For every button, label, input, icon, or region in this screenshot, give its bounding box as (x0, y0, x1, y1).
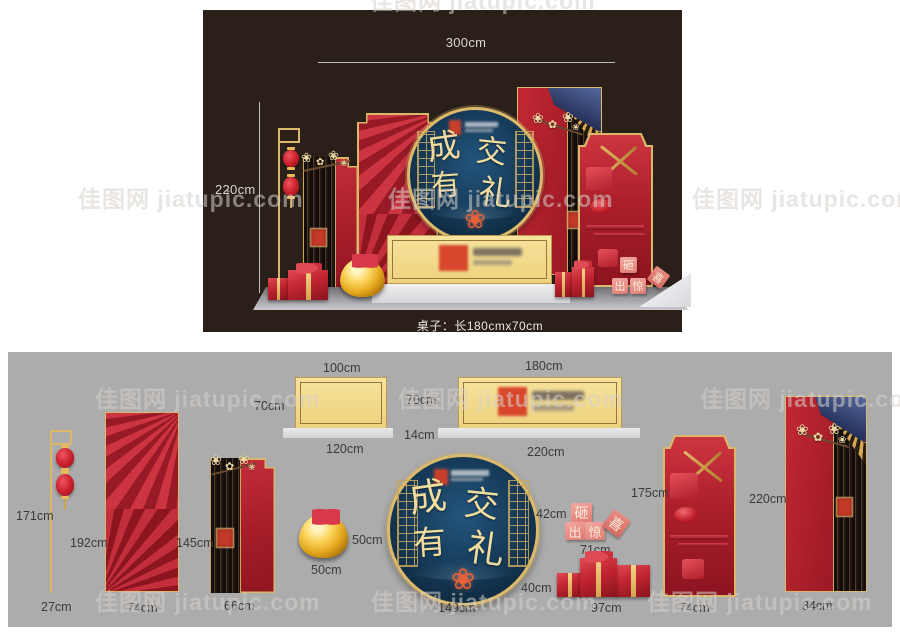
medallion-char: 交 (475, 136, 509, 170)
red-prop-table (586, 225, 644, 230)
smash-block: 惊 (630, 278, 646, 294)
assembled-display-preview: 300cm 220cm ❀✿ ❀❀ (203, 10, 682, 332)
framed-board (295, 377, 387, 429)
gold-ingot (340, 258, 385, 297)
board-base (283, 428, 393, 438)
dim-label: 84cm (802, 599, 833, 613)
brand-text-line (465, 129, 494, 132)
post-pole (278, 141, 280, 293)
red-prop-table (678, 543, 728, 547)
red-lantern-prop (590, 199, 612, 213)
medallion-char: 有 (412, 524, 447, 559)
post-hook (50, 430, 72, 445)
seal-stamp-icon (310, 228, 327, 247)
dim-label: 50cm (311, 563, 342, 577)
gift-box (572, 267, 594, 297)
lantern-tassel (290, 199, 292, 208)
eave-panel: ❀✿ ❀❀ (785, 396, 867, 592)
dim-label: 120cm (326, 442, 364, 456)
arch-scene-panel (663, 435, 736, 597)
gift-box (268, 278, 288, 300)
dim-label: 70cm (406, 393, 437, 407)
gift-box (580, 558, 617, 597)
dim-total-width-label: 300cm (431, 35, 501, 50)
brand-text-line (451, 470, 489, 475)
brand-text-blurred (473, 248, 522, 256)
dim-total-height-label: 220cm (215, 182, 256, 197)
ribbon-bow-icon (296, 261, 322, 274)
table-pedestal (372, 284, 570, 303)
brand-subtext-blurred (532, 405, 574, 411)
ribbon-bow-icon (352, 252, 378, 268)
lantern-icon (56, 474, 74, 496)
dim-label: 171cm (16, 509, 54, 523)
seal-stamp-icon (836, 497, 853, 517)
parts-breakdown-panel: 171cm 27cm 192cm 74cm ❀✿ ❀❀ 145cm 66cm 1… (8, 352, 892, 627)
dim-total-width-line (318, 62, 615, 63)
dim-label: 175cm (631, 486, 669, 500)
lattice-right (508, 480, 529, 567)
medallion-sign: 成 交 有 礼 ❀ (407, 107, 543, 243)
dim-label: 70cm (254, 399, 285, 413)
design-preview-stage: 佳图网 jiatupic.com 佳图网 jiatupic.com 佳图网 ji… (0, 0, 900, 640)
red-prop-table (594, 233, 644, 237)
lantern-icon (283, 177, 299, 196)
dim-label: 27cm (41, 600, 72, 614)
smash-block: 出 (565, 522, 585, 540)
banner-frame (392, 240, 547, 279)
lantern-tassel (64, 499, 66, 510)
lattice-right (515, 131, 534, 208)
lantern-icon (283, 150, 299, 167)
brand-seal-blurred (439, 245, 468, 271)
gift-box (555, 272, 572, 297)
brand-text-line (465, 122, 499, 127)
ribbon-bow-icon (585, 549, 613, 563)
dim-label: 220cm (749, 492, 787, 506)
medallion-char: 有 (430, 170, 461, 201)
dim-label: 66cm (224, 599, 255, 613)
dim-label: 145cm (176, 536, 214, 550)
brand-seal-blurred (498, 387, 527, 416)
table-size-caption: 桌子：长180cmx70cm (375, 317, 585, 334)
lotus-icon: ❀ (464, 205, 485, 235)
dim-label: 180cm (525, 359, 563, 373)
dim-label: 50cm (352, 533, 383, 547)
brand-subtext-blurred (473, 260, 512, 265)
red-prop-box (586, 167, 612, 191)
board-frame (300, 382, 382, 424)
lantern-icon (56, 448, 74, 468)
dim-label: 42cm (536, 507, 567, 521)
smash-block: 喜 (602, 509, 631, 538)
dim-total-height-line (259, 102, 260, 293)
brand-banner-board (387, 235, 552, 284)
striped-pillar (210, 458, 241, 593)
watermark: 佳图网 jiatupic.com (692, 180, 900, 214)
red-prop-table (670, 535, 728, 540)
fan-backdrop-panel (105, 412, 179, 592)
smash-block: 砸 (571, 503, 592, 523)
medallion-char: 成 (407, 476, 449, 518)
smash-block: 砸 (620, 257, 637, 273)
smash-block: 出 (612, 278, 628, 294)
dim-label: 220cm (527, 445, 565, 459)
lotus-icon: ❀ (451, 562, 475, 597)
banner-base (438, 428, 640, 438)
gift-box (616, 565, 650, 597)
red-prop-gift (598, 249, 618, 267)
seal-stamp-icon (216, 528, 234, 548)
medallion-sign: 成 交 有 礼 ❀ (387, 454, 539, 606)
medallion-char: 交 (463, 486, 501, 524)
dim-label: 14cm (404, 428, 435, 442)
red-prop-box (670, 473, 698, 499)
dim-label: 74cm (679, 601, 710, 615)
ribbon-bow-icon (312, 507, 340, 525)
brand-banner-board (458, 377, 622, 429)
ribbon-bow-icon (574, 259, 592, 269)
dim-label: 40cm (521, 581, 552, 595)
gift-box (288, 270, 328, 300)
red-lantern-prop (674, 507, 698, 522)
dim-label: 97cm (591, 601, 622, 615)
banner-frame (463, 382, 617, 424)
post-hook (278, 128, 300, 143)
red-prop-gift (682, 559, 704, 579)
dim-label: 192cm (70, 536, 108, 550)
dim-label: 74cm (127, 601, 158, 615)
dim-label: 149cm (438, 601, 476, 615)
brand-text-blurred (532, 391, 584, 400)
dim-label: 100cm (323, 361, 361, 375)
gold-ingot (299, 514, 348, 558)
brand-text-line (451, 478, 483, 482)
medallion-char: 成 (425, 127, 462, 164)
